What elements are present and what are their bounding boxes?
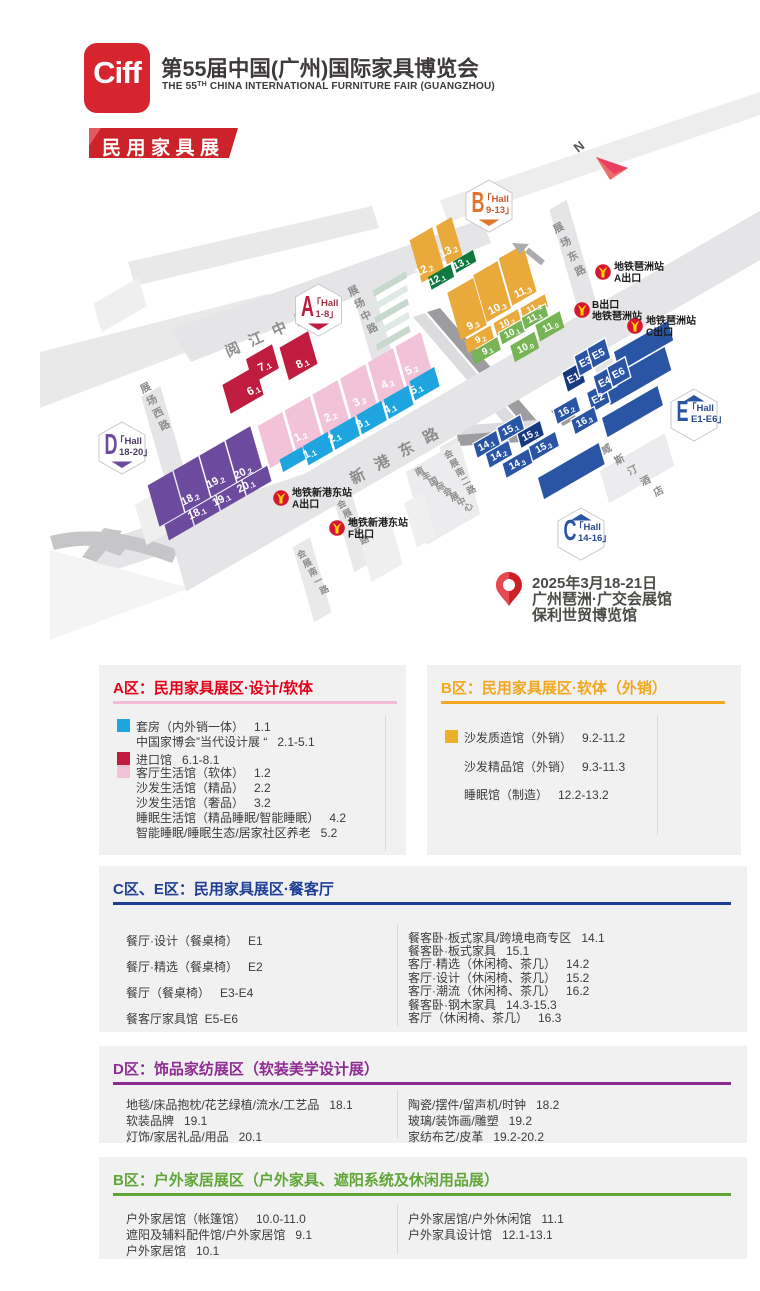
svg-text:F出口: F出口 [348,528,374,541]
svg-text:B出口: B出口 [592,298,619,311]
svg-text:18-20」: 18-20」 [119,447,153,458]
svg-text:「Hall: 「Hall [115,435,142,447]
svg-text:地铁琶洲站: 地铁琶洲站 [614,260,664,273]
svg-text:1-8」: 1-8」 [316,309,339,320]
svg-text:「Hall: 「Hall [574,521,601,533]
svg-text:保利世贸博览馆: 保利世贸博览馆 [531,606,637,624]
svg-text:「Hall: 「Hall [312,297,339,309]
svg-text:A出口: A出口 [292,498,319,511]
svg-text:2025年3月18-21日: 2025年3月18-21日 [532,574,657,592]
svg-text:C出口: C出口 [646,326,673,339]
svg-text:「Hall: 「Hall [687,402,714,414]
svg-text:地铁新港东站: 地铁新港东站 [348,516,408,529]
svg-text:14-16」: 14-16」 [578,533,612,544]
svg-text:地铁新港东站: 地铁新港东站 [292,486,352,499]
svg-text:广州琶洲·广交会展馆: 广州琶洲·广交会展馆 [532,590,672,608]
svg-text:E1-E6」: E1-E6」 [691,414,727,425]
svg-text:「Hall: 「Hall [482,193,509,205]
svg-text:地铁琶洲站: 地铁琶洲站 [646,314,696,327]
svg-text:A出口: A出口 [614,272,641,285]
svg-text:9-13」: 9-13」 [486,205,515,216]
svg-text:店: 店 [651,483,666,499]
